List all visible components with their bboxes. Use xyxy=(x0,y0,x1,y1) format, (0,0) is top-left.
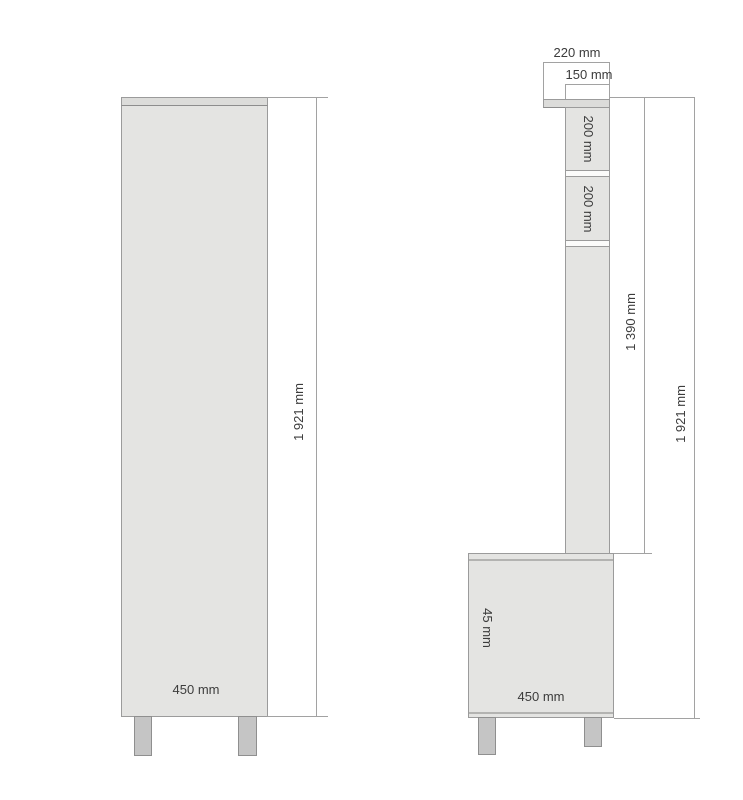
side-total-height-dimension-line xyxy=(694,97,695,719)
side-total-height-bottom-tick xyxy=(614,718,700,719)
front-cabinet-leg-left xyxy=(134,716,152,756)
side-total-height-label: 1 921 mm xyxy=(673,374,689,454)
side-mid-height-dimension-line xyxy=(644,97,645,554)
side-shelf-section-label-1: 200 mm xyxy=(580,99,596,179)
side-base-top-inner-line xyxy=(469,559,613,561)
front-bottom-extension-line xyxy=(267,716,328,717)
side-top-depth-dimension-line xyxy=(543,62,610,63)
side-mid-height-label: 1 390 mm xyxy=(623,282,639,362)
side-base-height-label: 45 mm xyxy=(479,588,495,668)
side-cabinet-leg-left xyxy=(478,717,496,755)
front-cabinet-top-rail xyxy=(121,97,268,106)
front-height-dimension-line xyxy=(316,97,317,717)
front-top-extension-line xyxy=(267,97,328,98)
side-top-depth-label: 220 mm xyxy=(527,45,627,61)
side-upper-depth-dimension-line xyxy=(565,84,610,85)
side-base-depth-label: 450 mm xyxy=(491,689,591,705)
front-width-dimension-label: 450 mm xyxy=(146,682,246,698)
front-cabinet-leg-right xyxy=(238,716,257,756)
side-shelf-section-label-2: 200 mm xyxy=(580,169,596,249)
side-top-extension-line xyxy=(610,97,695,98)
side-base-bottom-inner-line xyxy=(469,712,613,714)
front-cabinet-body xyxy=(121,97,268,717)
furniture-dimension-drawing: 450 mm 1 921 mm 220 mm 150 mm 200 mm 200… xyxy=(0,0,743,800)
side-cabinet-leg-right xyxy=(584,717,602,747)
front-height-dimension-label: 1 921 mm xyxy=(291,372,307,452)
side-upper-depth-label: 150 mm xyxy=(539,67,639,83)
